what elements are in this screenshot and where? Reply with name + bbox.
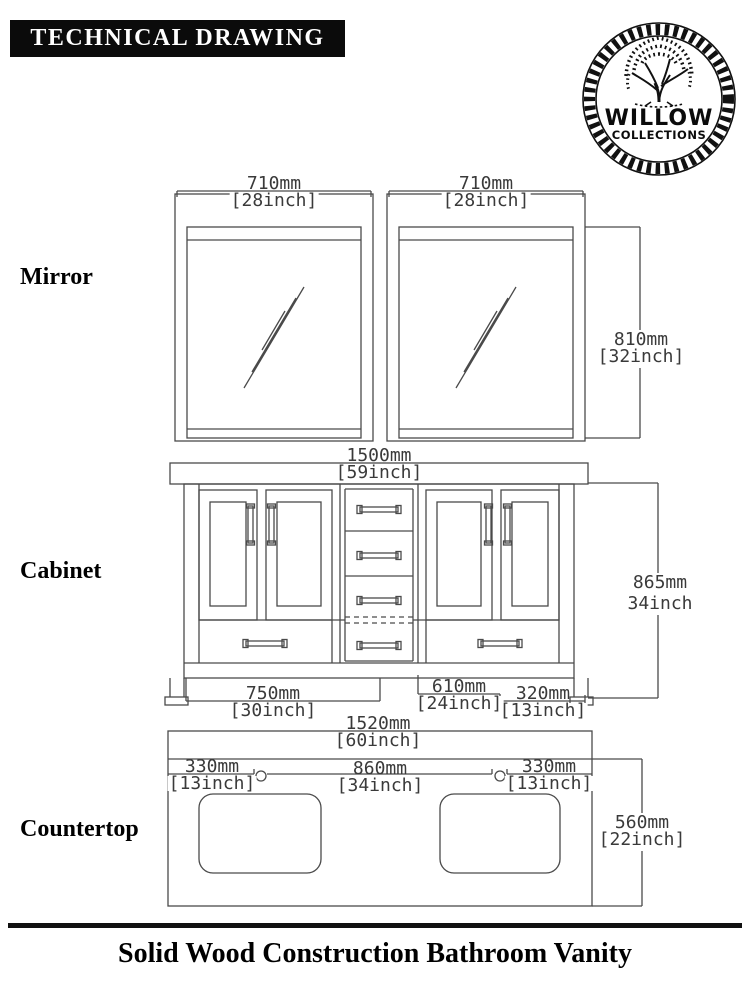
dim-inch-value: [34inch] <box>336 778 425 793</box>
dim-inch-value: [13inch] <box>499 703 588 718</box>
dim-countertop-faucet-span: 860mm [34inch] <box>336 761 425 795</box>
footer-rule <box>8 923 742 928</box>
technical-drawing-page: WILLOW COLLECTIONS TECHNICAL DRAWING Mir… <box>0 0 750 990</box>
sink-basin-right <box>440 794 560 873</box>
dim-cabinet-base-center: 610mm [24inch] <box>415 679 504 713</box>
willow-collections-logo: WILLOW COLLECTIONS <box>578 18 740 180</box>
section-label-countertop: Countertop <box>20 816 139 843</box>
sink-basin-left <box>199 794 321 873</box>
section-label-cabinet: Cabinet <box>20 558 101 585</box>
dim-countertop-depth: 560mm [22inch] <box>596 813 689 851</box>
dim-inch-value: [59inch] <box>335 465 424 480</box>
dim-mirror-right-width: 710mm [28inch] <box>442 176 531 210</box>
dim-countertop-right-offset: 330mm [13inch] <box>505 759 594 793</box>
logo-subtitle-text: COLLECTIONS <box>612 128 706 142</box>
dim-mm-value: 810mm <box>597 332 686 347</box>
faucet-hole-left <box>256 771 266 781</box>
cabinet-drawing <box>165 463 593 705</box>
mirror-reflection-lines <box>244 287 304 388</box>
dim-mm-value: 865mm <box>626 575 693 590</box>
dim-mm-value: 330mm <box>505 759 594 774</box>
page-title: TECHNICAL DRAWING <box>30 25 324 52</box>
footer-title: Solid Wood Construction Bathroom Vanity <box>0 938 750 970</box>
dim-mm-value: 560mm <box>598 815 687 830</box>
dim-cabinet-base-right: 320mm [13inch] <box>499 686 588 720</box>
dim-countertop-left-offset: 330mm [13inch] <box>168 759 257 793</box>
mirror-right-drawing <box>387 194 585 441</box>
dim-cabinet-height: 865mm 34inch <box>624 573 695 615</box>
dim-mm-value: 1500mm <box>335 448 424 463</box>
willow-tree-icon <box>626 38 692 107</box>
dim-inch-value: [60inch] <box>334 733 423 748</box>
dim-mm-value: 320mm <box>499 686 588 701</box>
dim-inch-value: [30inch] <box>229 703 318 718</box>
dim-cabinet-width: 1500mm [59inch] <box>335 448 424 482</box>
dim-mirror-height: 810mm [32inch] <box>595 330 688 368</box>
dim-cabinet-base-left: 750mm [30inch] <box>229 686 318 720</box>
faucet-hole-right <box>495 771 505 781</box>
dim-mm-value: 710mm <box>230 176 319 191</box>
dim-inch-value: 34inch <box>626 596 693 611</box>
dim-mm-value: 860mm <box>336 761 425 776</box>
dim-mm-value: 610mm <box>415 679 504 694</box>
dim-mm-value: 330mm <box>168 759 257 774</box>
dim-mm-value: 1520mm <box>334 716 423 731</box>
door-handles <box>247 504 512 545</box>
dim-inch-value: [13inch] <box>168 776 257 791</box>
dim-mm-value: 710mm <box>442 176 531 191</box>
dim-inch-value: [32inch] <box>597 349 686 364</box>
dim-inch-value: [28inch] <box>442 193 531 208</box>
drawer-handles <box>243 506 522 650</box>
section-label-mirror: Mirror <box>20 264 93 291</box>
dim-mm-value: 750mm <box>229 686 318 701</box>
dim-inch-value: [24inch] <box>415 696 504 711</box>
dim-inch-value: [13inch] <box>505 776 594 791</box>
dim-countertop-width: 1520mm [60inch] <box>334 716 423 750</box>
mirror-reflection-lines <box>456 287 516 388</box>
mirror-left-drawing <box>175 194 373 441</box>
dim-mirror-left-width: 710mm [28inch] <box>230 176 319 210</box>
mirror-dimension-lines <box>177 191 640 438</box>
header-title-box: TECHNICAL DRAWING <box>10 20 345 57</box>
dim-inch-value: [28inch] <box>230 193 319 208</box>
dim-inch-value: [22inch] <box>598 832 687 847</box>
